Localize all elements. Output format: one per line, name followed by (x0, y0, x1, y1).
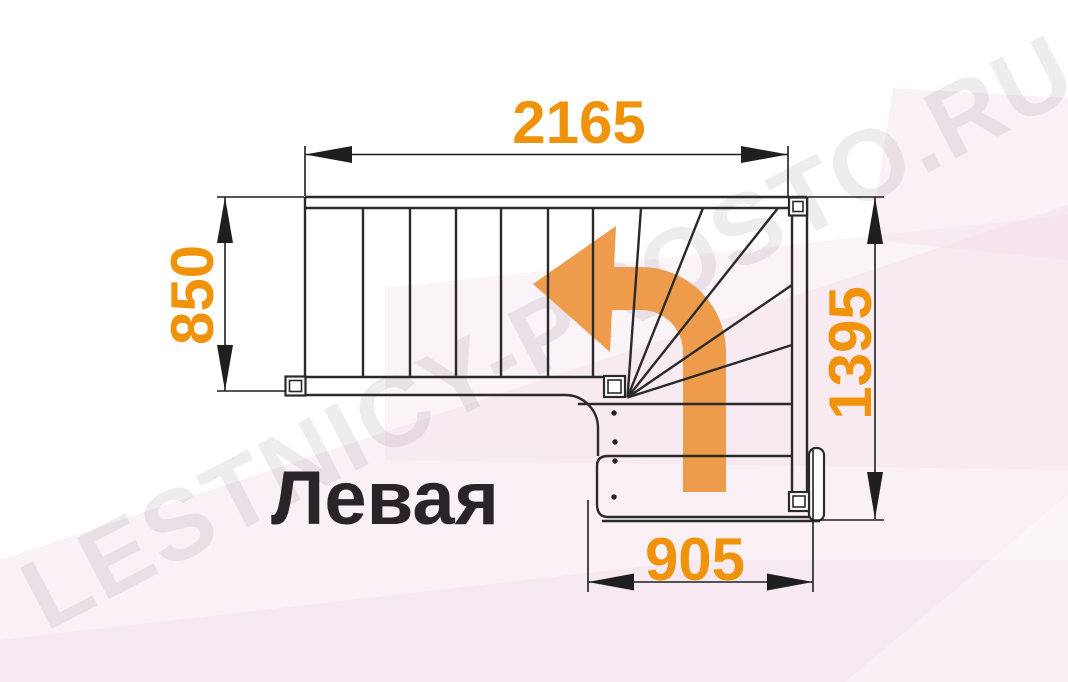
rail-end-piece (809, 448, 824, 521)
orientation-label: Левая (271, 456, 499, 541)
newel-post-winder (604, 376, 625, 397)
dimension-bottom-label: 905 (645, 526, 745, 593)
staircase-plan-svg: LESTNICY-PROSTO.RU (0, 0, 1068, 682)
newel-post-bottom-right (789, 492, 809, 511)
dimension-top-label: 2165 (512, 89, 645, 156)
dimension-left-label: 850 (159, 245, 226, 345)
staircase-plan-page: LESTNICY-PROSTO.RU (0, 0, 1068, 682)
dimension-right-label: 1395 (817, 286, 884, 419)
newel-post-left (286, 377, 306, 396)
newel-post-top-right (789, 198, 807, 216)
